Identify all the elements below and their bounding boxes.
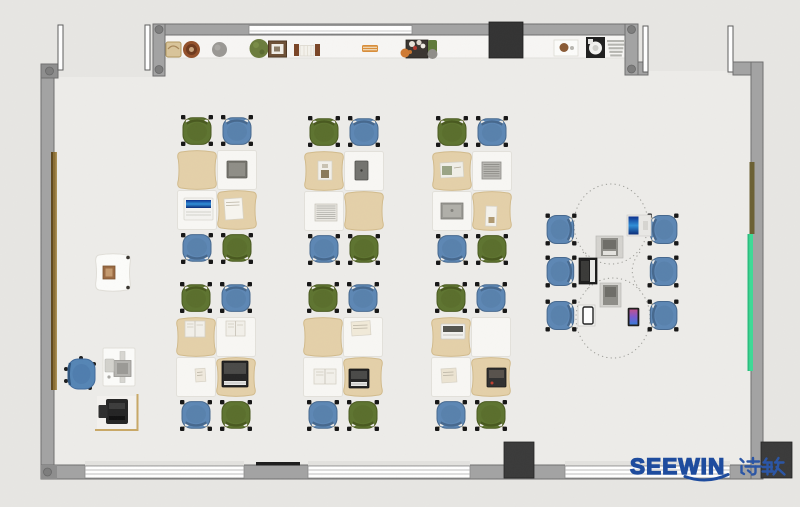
- svg-text:SEEWIN: SEEWIN: [630, 454, 725, 479]
